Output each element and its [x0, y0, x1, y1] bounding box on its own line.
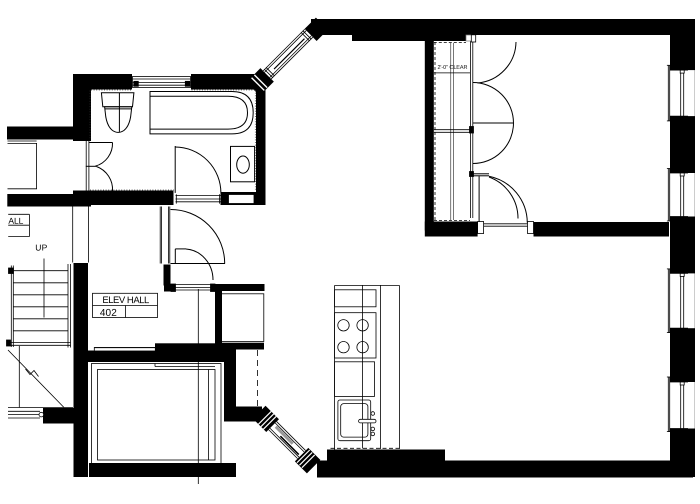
svg-text:402: 402 [100, 308, 117, 319]
svg-text:UP: UP [35, 243, 47, 253]
svg-text:ELEV HALL: ELEV HALL [102, 295, 149, 306]
svg-text:ALL: ALL [8, 216, 23, 226]
svg-text:2'-0" CLEAR: 2'-0" CLEAR [437, 65, 467, 71]
